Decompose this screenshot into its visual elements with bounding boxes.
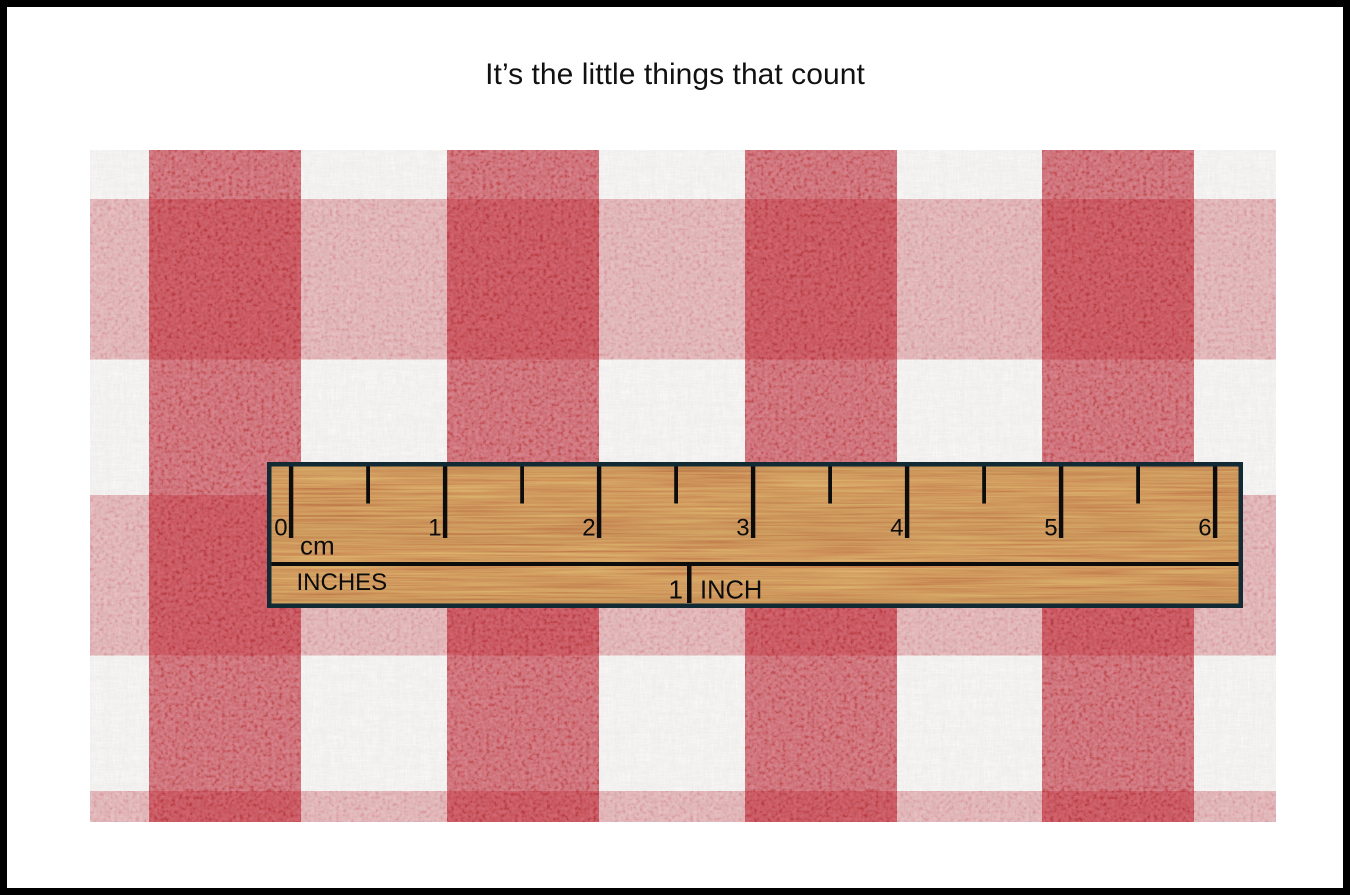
svg-text:1: 1	[669, 575, 683, 605]
svg-text:INCHES: INCHES	[297, 569, 388, 596]
svg-text:cm: cm	[300, 531, 335, 561]
svg-text:4: 4	[890, 515, 903, 542]
svg-text:INCH: INCH	[700, 577, 762, 605]
svg-text:6: 6	[1198, 515, 1211, 542]
svg-text:1: 1	[428, 515, 441, 542]
svg-text:5: 5	[1044, 515, 1057, 542]
svg-text:2: 2	[582, 515, 595, 542]
svg-text:0: 0	[274, 515, 287, 542]
svg-text:3: 3	[736, 515, 749, 542]
